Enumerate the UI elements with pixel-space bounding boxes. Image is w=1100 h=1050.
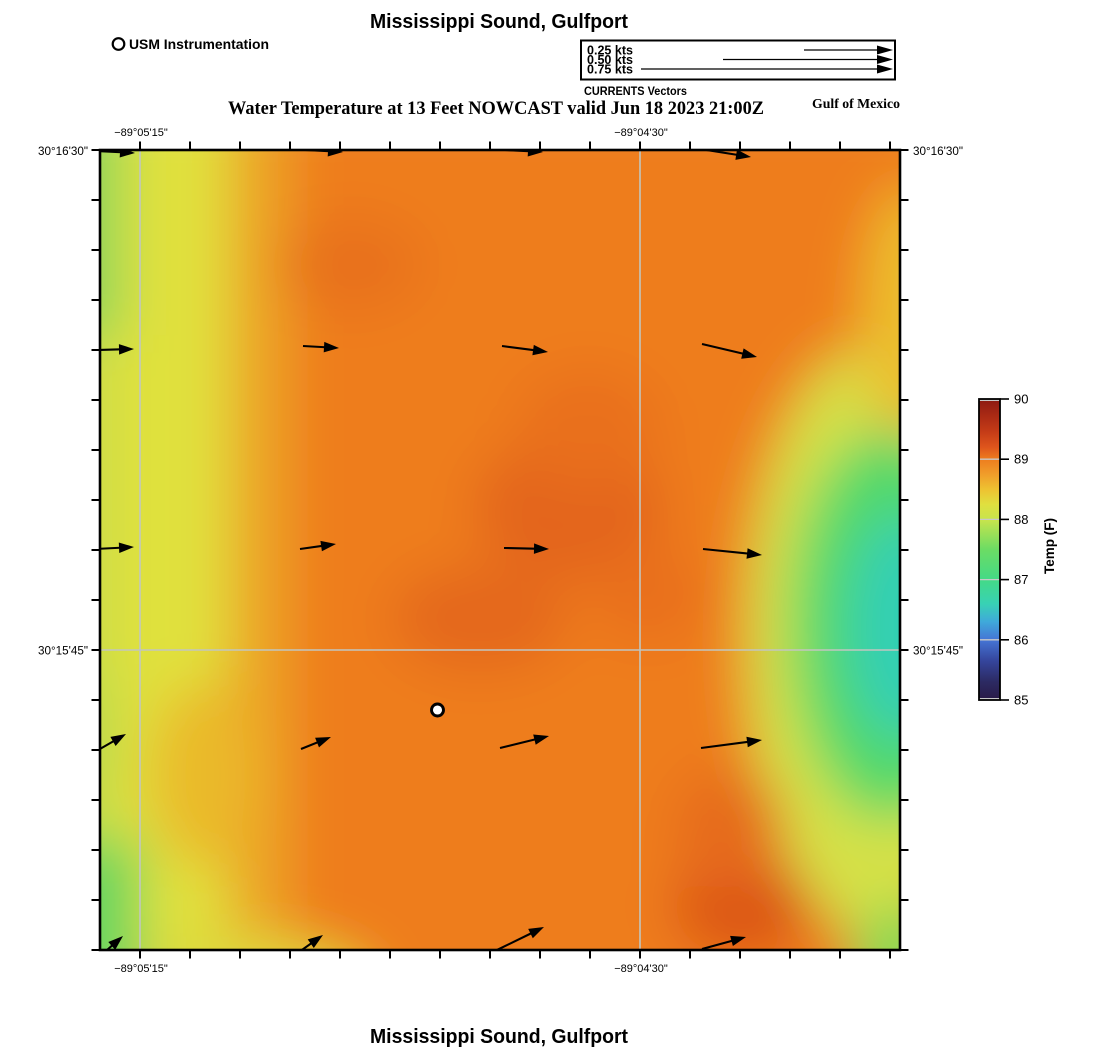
- svg-text:89: 89: [1014, 452, 1028, 467]
- svg-text:30°15'45": 30°15'45": [913, 646, 963, 658]
- svg-text:CURRENTS Vectors: CURRENTS Vectors: [584, 84, 687, 98]
- svg-text:87: 87: [1014, 572, 1028, 587]
- svg-text:30°16'30": 30°16'30": [913, 146, 963, 158]
- svg-text:−89°05'15": −89°05'15": [114, 963, 168, 975]
- svg-text:Temp (F): Temp (F): [1042, 518, 1057, 574]
- svg-text:Gulf of Mexico: Gulf of Mexico: [812, 97, 900, 112]
- svg-text:Mississippi Sound, Gulfport: Mississippi Sound, Gulfport: [370, 1026, 628, 1048]
- svg-text:Mississippi Sound, Gulfport: Mississippi Sound, Gulfport: [370, 11, 628, 33]
- svg-text:0.75 kts: 0.75 kts: [587, 63, 633, 77]
- svg-text:−89°05'15": −89°05'15": [114, 127, 168, 139]
- svg-text:−89°04'30": −89°04'30": [614, 127, 668, 139]
- svg-text:Water Temperature at 13 Feet N: Water Temperature at 13 Feet NOWCAST val…: [228, 98, 764, 119]
- svg-text:85: 85: [1014, 693, 1028, 708]
- svg-text:88: 88: [1014, 512, 1028, 527]
- svg-text:USM Instrumentation: USM Instrumentation: [129, 36, 269, 52]
- svg-text:30°16'30": 30°16'30": [38, 146, 88, 158]
- svg-text:30°15'45": 30°15'45": [38, 646, 88, 658]
- svg-text:86: 86: [1014, 632, 1028, 647]
- svg-text:−89°04'30": −89°04'30": [614, 963, 668, 975]
- svg-text:90: 90: [1014, 392, 1028, 407]
